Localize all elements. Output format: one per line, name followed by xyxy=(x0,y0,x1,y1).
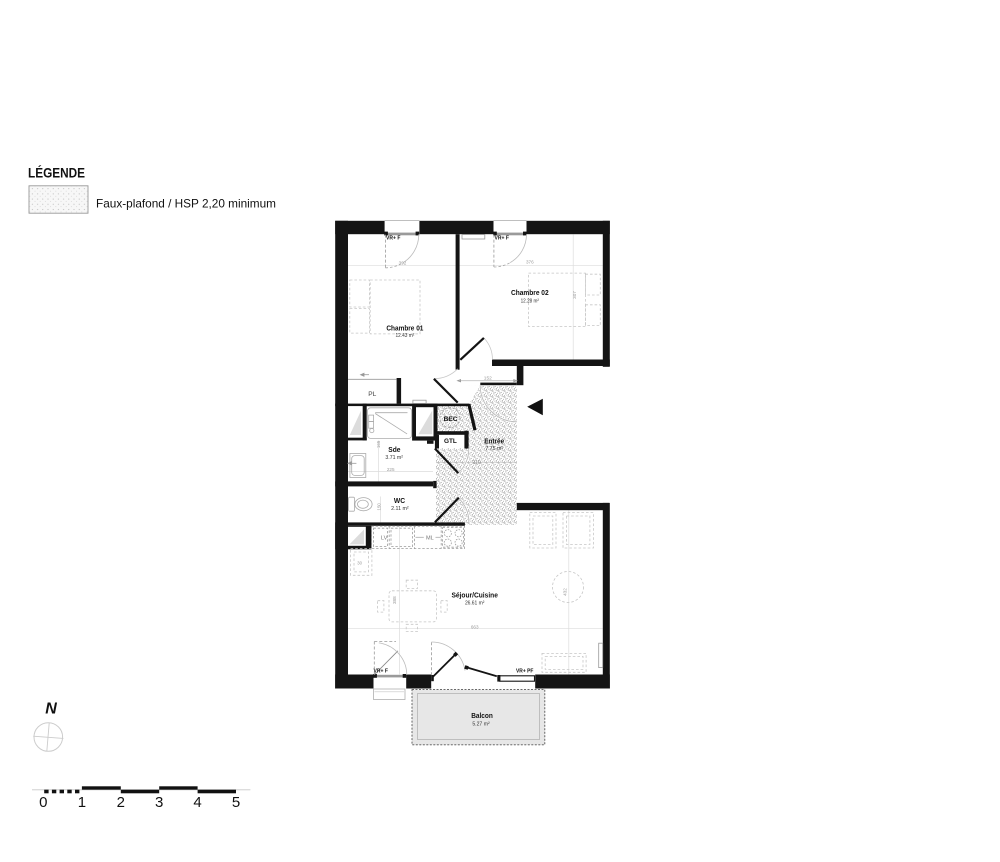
svg-text:Faux-plafond / HSP 2,20 minimu: Faux-plafond / HSP 2,20 minimum xyxy=(96,197,276,211)
svg-text:BEC: BEC xyxy=(444,416,458,423)
svg-text:3: 3 xyxy=(155,794,163,811)
svg-text:N: N xyxy=(45,701,57,718)
svg-text:VR+ F: VR+ F xyxy=(386,235,400,241)
svg-text:Chambre 02: Chambre 02 xyxy=(511,288,549,297)
svg-text:LV: LV xyxy=(381,535,388,541)
svg-text:LÉGENDE: LÉGENDE xyxy=(28,164,85,181)
svg-text:2: 2 xyxy=(117,794,125,811)
svg-text:388: 388 xyxy=(392,596,397,604)
svg-text:PL: PL xyxy=(368,391,376,398)
svg-text:VR+ F: VR+ F xyxy=(374,668,388,674)
svg-text:GTL: GTL xyxy=(444,438,457,445)
svg-text:VR+ PF: VR+ PF xyxy=(516,668,533,674)
svg-text:152: 152 xyxy=(484,376,492,382)
svg-text:307: 307 xyxy=(572,291,577,299)
svg-text:VR+ F: VR+ F xyxy=(495,236,509,242)
svg-text:432: 432 xyxy=(563,588,568,596)
svg-text:WC: WC xyxy=(394,496,406,505)
svg-text:Chambre 01: Chambre 01 xyxy=(386,323,423,332)
svg-text:165: 165 xyxy=(376,440,381,448)
svg-text:Séjour/Cuisine: Séjour/Cuisine xyxy=(451,590,498,599)
svg-text:1: 1 xyxy=(78,794,86,811)
svg-text:225: 225 xyxy=(387,467,395,472)
svg-text:30: 30 xyxy=(357,561,362,566)
svg-text:12.43 m²: 12.43 m² xyxy=(396,333,415,339)
svg-text:3.71 m²: 3.71 m² xyxy=(385,455,403,461)
svg-text:392: 392 xyxy=(399,260,407,265)
svg-text:150: 150 xyxy=(376,503,381,511)
svg-text:5.27 m²: 5.27 m² xyxy=(472,721,490,727)
svg-text:210: 210 xyxy=(472,460,481,466)
svg-text:Sde: Sde xyxy=(388,445,400,454)
svg-text:7.75 m²: 7.75 m² xyxy=(485,446,503,452)
svg-text:5: 5 xyxy=(232,794,240,811)
svg-text:Entrée: Entrée xyxy=(484,437,504,446)
svg-text:2.11 m²: 2.11 m² xyxy=(391,506,409,512)
svg-text:376: 376 xyxy=(526,259,534,264)
svg-text:0: 0 xyxy=(39,794,47,811)
svg-text:12.28 m²: 12.28 m² xyxy=(521,298,540,304)
svg-text:Balcon: Balcon xyxy=(471,711,493,720)
svg-text:ML: ML xyxy=(426,535,434,541)
svg-text:26.61 m²: 26.61 m² xyxy=(465,600,485,606)
svg-text:4: 4 xyxy=(193,794,201,811)
svg-text:663: 663 xyxy=(471,625,479,630)
